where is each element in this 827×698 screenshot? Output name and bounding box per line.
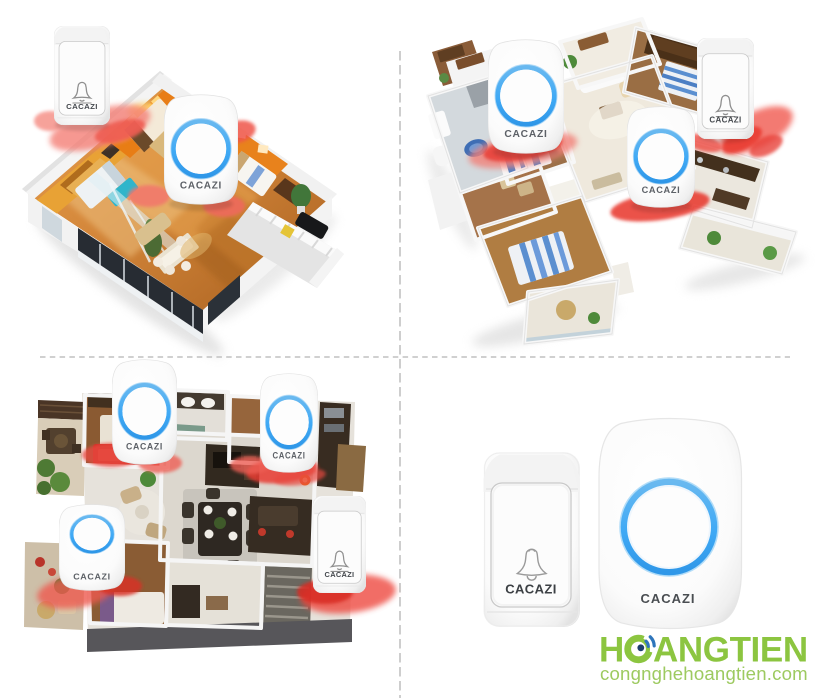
svg-text:CACAZI: CACAZI bbox=[640, 591, 695, 606]
svg-text:CACAZI: CACAZI bbox=[505, 582, 557, 597]
svg-text:congnghehoangtien.com: congnghehoangtien.com bbox=[600, 663, 808, 684]
